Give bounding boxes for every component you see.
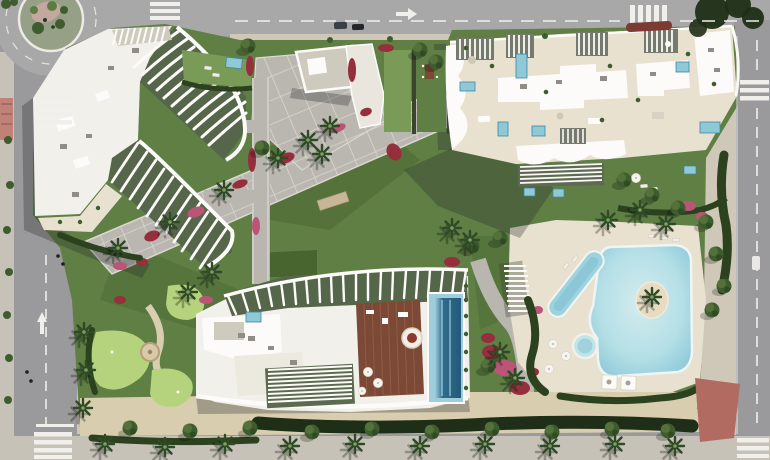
aerial-view: Aerial top-down 3D render of a residenti… [0,0,770,460]
walled-garden [384,50,411,132]
rooftop-pool [427,292,465,404]
crosswalk-roundabout-north [150,2,180,20]
crosswalk-east-upper [740,80,769,101]
garden-walk [252,78,270,284]
roof-pergola-slats [265,364,355,409]
east-street [734,20,770,460]
red-paving [695,378,740,442]
car [334,22,347,29]
boundary-hedge [258,422,692,427]
crosswalk-east-lower [737,438,769,458]
car [752,256,760,270]
roof-plunge-pool [246,312,261,322]
car [352,24,364,30]
aerial-render-svg: Aerial top-down 3D render of a residenti… [0,0,770,460]
plunge-pool [226,57,243,69]
